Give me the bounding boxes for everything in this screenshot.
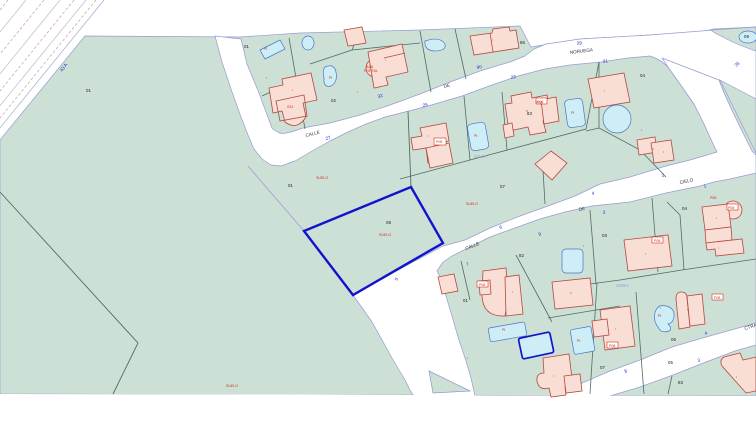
svg-text:P08: P08	[609, 344, 615, 348]
svg-text:03: 03	[602, 233, 607, 238]
svg-text:01: 01	[86, 88, 91, 93]
svg-text:06: 06	[671, 337, 676, 342]
svg-text:08: 08	[386, 220, 391, 225]
svg-text:02: 02	[331, 98, 336, 103]
svg-text:034: 034	[287, 105, 293, 109]
svg-text:P08: P08	[536, 101, 542, 105]
svg-text:3414m: 3414m	[474, 154, 487, 159]
svg-text:07: 07	[600, 365, 605, 370]
svg-text:83: 83	[678, 380, 683, 385]
svg-text:PORTAL: PORTAL	[364, 69, 378, 73]
svg-text:P08: P08	[714, 296, 720, 300]
svg-text:SUELO: SUELO	[379, 233, 391, 237]
svg-text:PI: PI	[577, 339, 580, 343]
svg-text:05: 05	[668, 360, 673, 365]
svg-text:P08: P08	[710, 196, 716, 200]
svg-text:04: 04	[640, 73, 645, 78]
svg-text:SUELO: SUELO	[226, 384, 238, 388]
svg-text:86: 86	[520, 40, 525, 45]
svg-text:01: 01	[244, 44, 249, 49]
svg-text:PI: PI	[502, 328, 505, 332]
svg-text:04: 04	[682, 206, 687, 211]
svg-text:PI: PI	[658, 314, 661, 318]
svg-text:P08: P08	[436, 140, 442, 144]
svg-text:01: 01	[288, 183, 293, 188]
svg-text:SUELO: SUELO	[316, 176, 328, 180]
svg-text:P08: P08	[654, 239, 660, 243]
svg-text:PI: PI	[571, 111, 574, 115]
svg-text:07: 07	[500, 184, 505, 189]
svg-text:P08: P08	[479, 283, 485, 287]
svg-text:PI: PI	[264, 47, 267, 51]
svg-text:P08: P08	[728, 206, 734, 210]
svg-text:PI: PI	[329, 76, 332, 80]
svg-text:82: 82	[519, 253, 524, 258]
svg-text:01: 01	[463, 298, 468, 303]
svg-text:3636m: 3636m	[616, 283, 629, 288]
svg-text:83: 83	[527, 111, 532, 116]
svg-text:08: 08	[744, 34, 749, 39]
svg-text:PI: PI	[474, 134, 477, 138]
svg-text:SUELO: SUELO	[466, 202, 478, 206]
